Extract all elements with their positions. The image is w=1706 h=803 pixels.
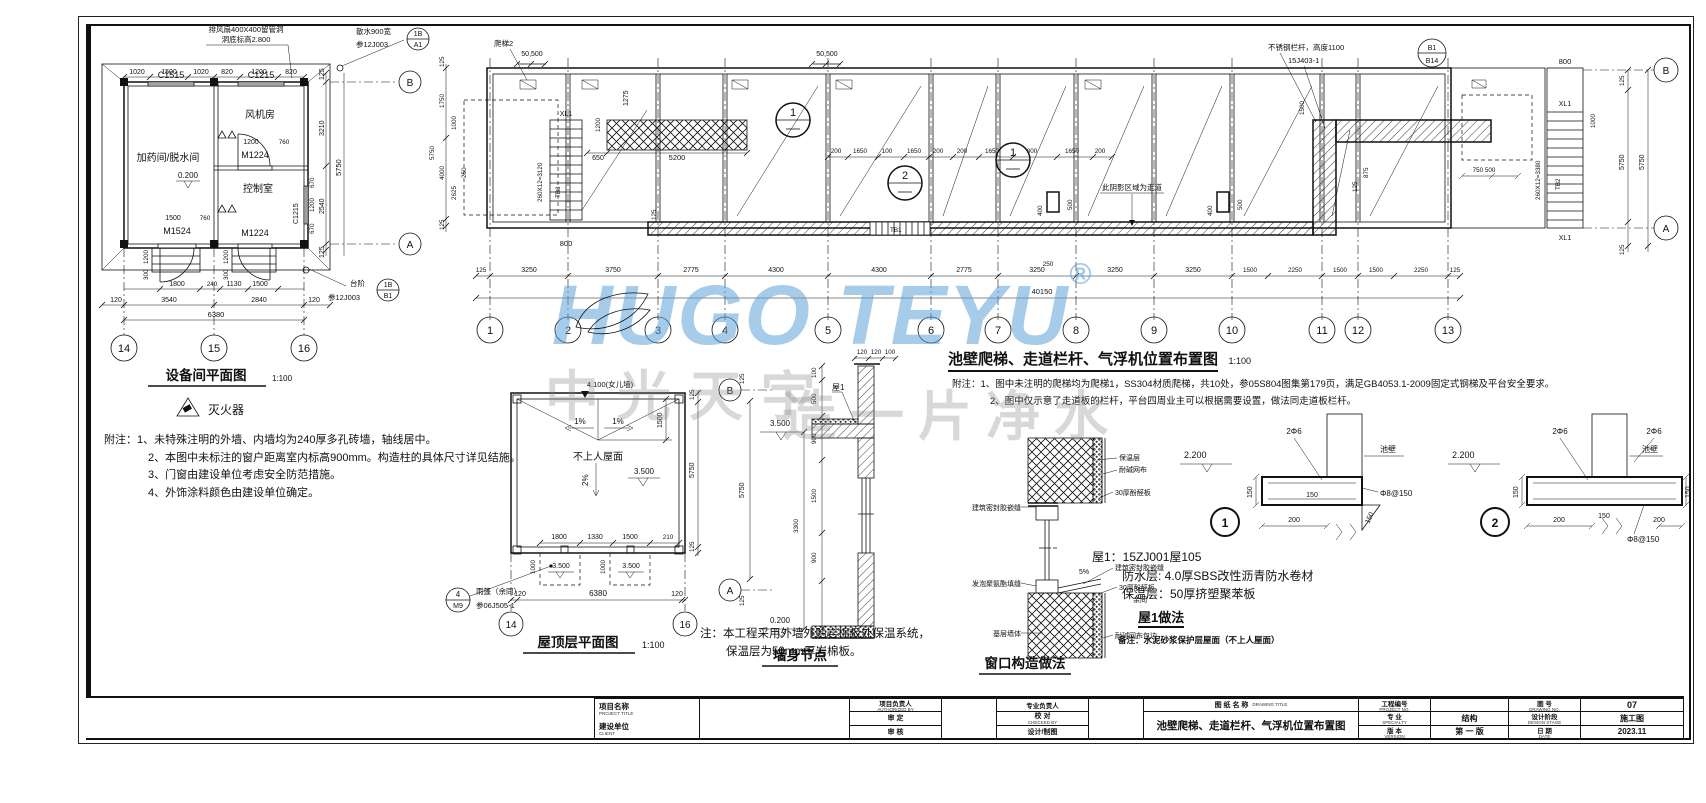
svg-text:820: 820	[221, 69, 233, 76]
svg-text:200: 200	[1553, 517, 1565, 524]
svg-text:2: 2	[565, 325, 571, 337]
svg-text:池壁: 池壁	[1380, 444, 1396, 454]
grid-bubble-A: A	[330, 233, 421, 255]
svg-text:4300: 4300	[871, 267, 887, 274]
discipline-lead-label: 专业负责人	[996, 698, 1088, 711]
roof-plan-title: 屋顶层平面图 1:100	[523, 635, 665, 653]
dims-bottom-main: 125 3250 3750 2775 4300 4300 2775 3250 3…	[473, 267, 1463, 301]
svg-text:4: 4	[456, 590, 461, 599]
svg-text:760: 760	[200, 215, 211, 222]
svg-text:5%: 5%	[1079, 569, 1089, 576]
wall-section: B A 125 5750 125 3.500 0.200 100 500 900…	[692, 328, 920, 673]
door-m1224-inner: M1224 1200 760	[238, 134, 290, 170]
svg-text:3250: 3250	[1185, 267, 1201, 274]
svg-text:1%: 1%	[612, 417, 624, 426]
authorized-value	[941, 698, 996, 738]
svg-text:210: 210	[663, 534, 674, 541]
svg-text:2Φ6: 2Φ6	[1552, 427, 1568, 436]
svg-text:120: 120	[857, 349, 868, 356]
svg-text:4.100(女儿墙): 4.100(女儿墙)	[587, 379, 634, 389]
svg-text:2540: 2540	[319, 198, 326, 214]
svg-text:B1: B1	[384, 293, 393, 300]
svg-text:A: A	[727, 586, 734, 597]
svg-text:5750: 5750	[739, 482, 746, 498]
dim-valley: 1500	[598, 396, 672, 443]
svg-text:1000: 1000	[600, 559, 607, 574]
elevation-0200: 0.200	[176, 171, 200, 188]
svg-text:2.200: 2.200	[1184, 450, 1207, 460]
sanshui-callout: 散水900宽 参12J003 1B A1	[337, 26, 429, 71]
svg-text:M9: M9	[453, 603, 463, 610]
svg-text:250: 250	[461, 167, 468, 178]
svg-text:此阴影区域为走道: 此阴影区域为走道	[1102, 182, 1162, 192]
svg-text:150: 150	[1513, 486, 1520, 498]
svg-text:6: 6	[928, 325, 934, 337]
spec-line: 保温层：50厚挤塑聚苯板	[1092, 585, 1313, 604]
svg-text:1500: 1500	[1243, 267, 1258, 274]
svg-text:15: 15	[208, 343, 220, 355]
svg-text:760: 760	[279, 139, 290, 146]
svg-text:XL1: XL1	[560, 111, 573, 118]
svg-text:125: 125	[739, 595, 746, 606]
svg-text:670: 670	[309, 223, 316, 234]
svg-text:XL1: XL1	[1559, 235, 1572, 242]
svg-text:125: 125	[319, 246, 326, 258]
svg-text:设备间平面图: 设备间平面图	[166, 367, 247, 383]
svg-text:900: 900	[811, 552, 818, 563]
svg-text:40150: 40150	[1032, 287, 1053, 296]
svg-text:0.200: 0.200	[770, 616, 791, 625]
spec-line: 防水层: 4.0厚SBS改性沥青防水卷材	[1092, 567, 1313, 586]
svg-text:750 500: 750 500	[1473, 167, 1496, 174]
svg-text:4300: 4300	[768, 267, 784, 274]
drawing-sheet: 排风扇400X400留管洞 洞底标高2.800 散水900宽 参12J003 1…	[0, 0, 1706, 803]
note-line: 保温层为50mm厚岩棉板。	[700, 643, 930, 661]
svg-text:1650: 1650	[985, 148, 1000, 155]
svg-text:2%: 2%	[581, 474, 590, 486]
svg-text:1500: 1500	[1299, 100, 1306, 115]
svg-text:7: 7	[995, 325, 1001, 337]
svg-text:400: 400	[1207, 205, 1214, 216]
svg-text:1000: 1000	[1590, 113, 1597, 128]
svg-text:A1: A1	[414, 42, 423, 49]
svg-text:300: 300	[1027, 148, 1038, 155]
svg-text:B14: B14	[1426, 58, 1439, 65]
dims-right: 125 3210 2540 125 5750 670 1200 670	[309, 68, 344, 258]
svg-text:125: 125	[439, 56, 446, 67]
extinguisher-legend: 灭火器	[177, 398, 244, 417]
svg-text:125: 125	[1619, 244, 1626, 255]
walkway-hatch: 1500 875 125 125	[648, 100, 1491, 235]
machine-1b: 1	[996, 143, 1030, 177]
svg-text:13: 13	[1442, 325, 1454, 337]
window-c1215-right: C1215	[293, 186, 308, 224]
svg-text:Φ8@150: Φ8@150	[1380, 489, 1413, 498]
room-control: 控制室	[243, 182, 273, 195]
svg-text:1130: 1130	[226, 281, 241, 288]
window-detail-title: 窗口构造做法	[979, 655, 1071, 674]
svg-text:1B: 1B	[384, 282, 393, 289]
svg-text:M1524: M1524	[163, 226, 191, 236]
parapet-elevation: 4.100(女儿墙)	[576, 379, 634, 398]
svg-text:150: 150	[1306, 492, 1318, 499]
svg-text:1800: 1800	[169, 281, 185, 288]
svg-text:16: 16	[679, 620, 691, 631]
svg-text:1: 1	[1222, 516, 1229, 530]
grid-bubbles-14-15-16: 14 15 16	[111, 248, 317, 361]
window-frame	[1028, 503, 1101, 593]
svg-text:3250: 3250	[1029, 267, 1045, 274]
svg-text:C1215: C1215	[293, 203, 300, 224]
svg-text:散水900宽: 散水900宽	[356, 26, 392, 36]
svg-text:雨篷（余同）: 雨篷（余同）	[476, 586, 521, 596]
svg-text:1: 1	[790, 107, 796, 119]
svg-text:15J403-1: 15J403-1	[1288, 56, 1319, 65]
dims-left: 125 1750 1000 4000 2625 250 5750 125	[429, 56, 468, 232]
svg-text:500: 500	[811, 393, 818, 404]
svg-text:3250: 3250	[1107, 267, 1123, 274]
slab-details: 2.200 2Φ6 池壁 Φ8@150 150 150 150 200 1 2.…	[1122, 402, 1688, 552]
svg-text:1800: 1800	[551, 534, 567, 541]
drawing-title-label-en: DRAWING TITLE	[1252, 703, 1287, 708]
svg-text:0.200: 0.200	[178, 171, 199, 180]
note-line: 注：本工程采用外墙外贴岩棉板外保温系统，	[700, 625, 930, 643]
roof1-remark: 备注：水泥砂浆保护层屋面（不上人屋面）	[1092, 634, 1313, 647]
roof1-spec: 屋1：15ZJ001屋105 防水层: 4.0厚SBS改性沥青防水卷材 保温层：…	[1092, 548, 1313, 647]
canopy-callout: 4 M9 雨篷（余同） 参06J505-1	[446, 564, 553, 612]
svg-text:B: B	[407, 78, 414, 89]
machine-1a: 1	[776, 103, 810, 137]
svg-text:3210: 3210	[319, 120, 326, 136]
svg-text:M1224: M1224	[241, 228, 269, 238]
svg-text:3.500: 3.500	[622, 563, 640, 570]
svg-text:基层墙体: 基层墙体	[993, 629, 1021, 638]
svg-text:120: 120	[308, 297, 320, 304]
date-label-en: DATE	[1539, 735, 1551, 738]
svg-text:125: 125	[651, 209, 658, 220]
walkway-label: 此阴影区域为走道	[1100, 182, 1164, 226]
svg-text:1200: 1200	[595, 117, 602, 132]
svg-text:Φ8@150: Φ8@150	[1627, 535, 1660, 544]
svg-text:爬梯2: 爬梯2	[494, 38, 513, 48]
version-value: 第 一 版	[1430, 725, 1508, 738]
svg-text:125: 125	[439, 219, 446, 230]
stage-value: 施工图	[1580, 711, 1683, 724]
svg-text:1200: 1200	[143, 249, 150, 264]
svg-text:1650: 1650	[853, 148, 868, 155]
roof1-title: 屋1做法	[1138, 610, 1184, 628]
right-extension: 750 500	[1451, 68, 1545, 228]
svg-text:2625: 2625	[451, 185, 458, 200]
svg-text:1%: 1%	[574, 417, 586, 426]
roof-label: 不上人屋面	[573, 451, 623, 463]
svg-text:排风扇400X400留管洞: 排风扇400X400留管洞	[208, 24, 283, 34]
svg-text:灭火器: 灭火器	[208, 403, 244, 417]
svg-text:1650: 1650	[907, 148, 922, 155]
svg-text:1:100: 1:100	[642, 640, 665, 650]
svg-text:3: 3	[655, 325, 661, 337]
room-dosing: 加药间/脱水间	[137, 151, 200, 164]
note-line: 附注：1、图中未注明的爬梯均为爬梯1，SS304材质爬梯，共10处，参05S80…	[952, 376, 1554, 393]
main-plan-title-text: 池壁爬梯、走道栏杆、气浮机位置布置图	[948, 351, 1218, 372]
svg-text:1500: 1500	[657, 412, 664, 428]
svg-text:50,500: 50,500	[521, 51, 543, 58]
main-plan-scale: 1:100	[1228, 356, 1251, 366]
grid-bubbles-ws: B A 125 5750 125	[719, 373, 772, 606]
room-fan: 风机房	[245, 108, 275, 121]
svg-text:1200: 1200	[309, 197, 316, 212]
wall-section-notes: 注：本工程采用外墙外贴岩棉板外保温系统， 保温层为50mm厚岩棉板。	[700, 625, 930, 662]
svg-text:3300: 3300	[793, 518, 800, 533]
grid-bubble-B: B	[330, 71, 421, 93]
equipment-room-plan: 排风扇400X400留管洞 洞底标高2.800 散水900宽 参12J003 1…	[88, 18, 433, 430]
svg-text:参06J505-1: 参06J505-1	[476, 600, 515, 610]
svg-text:125: 125	[1619, 75, 1626, 86]
elevation-3500-main: 3.500	[628, 467, 660, 486]
svg-text:2Φ6: 2Φ6	[1286, 427, 1302, 436]
svg-text:5750: 5750	[334, 159, 343, 176]
svg-text:200: 200	[1653, 517, 1665, 524]
svg-text:200: 200	[933, 148, 944, 155]
client-label: 建设单位	[599, 721, 629, 732]
railing-callout: 不锈钢栏杆，高度1100 15J403-1 B1 B14	[1268, 39, 1446, 128]
detail-2: 2.200 2Φ6 2Φ6 池壁 150 150 150 200 200 Φ8@…	[1448, 414, 1692, 544]
svg-text:不锈钢栏杆，高度1100: 不锈钢栏杆，高度1100	[1268, 42, 1344, 52]
date-value: 2023.11	[1580, 725, 1683, 738]
svg-text:1500: 1500	[1333, 267, 1348, 274]
stair-xl1-right: XL1 TB2 260X12=3380 XL1 800 1000	[1535, 57, 1597, 242]
svg-text:2Φ6: 2Φ6	[1646, 427, 1662, 436]
svg-text:260X12=3380: 260X12=3380	[1535, 160, 1542, 200]
svg-text:1: 1	[487, 325, 493, 337]
svg-text:14: 14	[118, 343, 130, 355]
grid-bubble-B-right: B	[1583, 58, 1678, 82]
dims-top-small: 50,500 50,500	[514, 51, 843, 67]
svg-text:8: 8	[1073, 325, 1079, 337]
svg-text:3.500: 3.500	[552, 563, 570, 570]
svg-text:120: 120	[671, 591, 683, 598]
svg-text:2: 2	[902, 170, 908, 182]
svg-text:400: 400	[1037, 205, 1044, 216]
svg-text:洞底标高2.800: 洞底标高2.800	[222, 34, 271, 44]
svg-text:120: 120	[871, 349, 882, 356]
svg-text:屋1: 屋1	[832, 383, 845, 392]
svg-text:2: 2	[1492, 516, 1499, 530]
svg-text:260X12=3120: 260X12=3120	[537, 162, 544, 202]
svg-text:200: 200	[831, 148, 842, 155]
svg-text:1020: 1020	[193, 69, 209, 76]
svg-text:1750: 1750	[439, 93, 446, 108]
svg-text:2775: 2775	[956, 267, 972, 274]
svg-text:3.500: 3.500	[634, 467, 655, 476]
svg-text:200: 200	[1288, 517, 1300, 524]
svg-text:300: 300	[223, 269, 230, 280]
discipline-lead-value	[1088, 698, 1143, 738]
svg-text:16: 16	[298, 343, 310, 355]
extinguisher-symbols	[218, 131, 236, 212]
svg-text:1200: 1200	[243, 139, 259, 146]
dims-inner-bottom: 1800 1330 1500 210	[537, 534, 682, 546]
svg-text:800: 800	[1559, 57, 1572, 66]
svg-text:500: 500	[1237, 199, 1244, 210]
project-title-value	[699, 698, 849, 738]
title-block: 项目名称 PROJECT TITLE 建设单位 CLIENT 项目负责人 AUT…	[86, 696, 1684, 738]
svg-text:1200: 1200	[223, 249, 230, 264]
svg-text:池壁: 池壁	[1642, 444, 1658, 454]
svg-text:500: 500	[1067, 199, 1074, 210]
svg-text:TB3: TB3	[555, 186, 562, 198]
svg-text:5200: 5200	[669, 153, 686, 162]
svg-text:125: 125	[1352, 181, 1359, 192]
dims-bottom-roof: 120 6380 120	[508, 589, 688, 603]
svg-text:1020: 1020	[129, 69, 145, 76]
svg-text:100: 100	[885, 349, 896, 356]
svg-text:TB2: TB2	[1555, 178, 1562, 190]
roof-plan: 4.100(女儿墙) 1% 1% 2% 1500 不上人屋面 3.500 3.5…	[428, 338, 720, 656]
svg-text:3750: 3750	[605, 267, 621, 274]
svg-text:100: 100	[882, 148, 893, 155]
stair-tb1: TB1	[870, 222, 930, 235]
svg-text:875: 875	[1363, 167, 1370, 178]
svg-text:125: 125	[1450, 267, 1461, 274]
entrance-steps: 1200 300 1200 300	[143, 248, 276, 280]
svg-text:14: 14	[505, 620, 517, 631]
client-label-en: CLIENT	[599, 732, 615, 737]
svg-text:TB1: TB1	[890, 227, 902, 234]
svg-text:B1: B1	[1428, 45, 1437, 52]
project-title-label-en: PROJECT TITLE	[599, 712, 633, 717]
svg-text:2250: 2250	[1288, 267, 1303, 274]
version-label-en: VERSION	[1384, 735, 1404, 738]
svg-text:12: 12	[1352, 325, 1364, 337]
main-tank-plan: 爬梯2 50,500 50,500 XL1 TB3 260X12=3120 80…	[432, 20, 1694, 350]
upper-wall	[1028, 438, 1105, 503]
svg-text:1B: 1B	[414, 31, 423, 38]
svg-text:4000: 4000	[439, 165, 446, 180]
svg-text:2.200: 2.200	[1452, 450, 1475, 460]
svg-text:XL1: XL1	[1559, 101, 1572, 108]
svg-text:2840: 2840	[251, 297, 267, 304]
svg-text:200: 200	[957, 148, 968, 155]
svg-text:3250: 3250	[521, 267, 537, 274]
svg-text:670: 670	[309, 177, 316, 188]
svg-text:1000: 1000	[451, 115, 458, 130]
svg-text:50,500: 50,500	[816, 51, 838, 58]
svg-text:发泡聚氨酯填缝: 发泡聚氨酯填缝	[972, 579, 1021, 588]
svg-text:3540: 3540	[161, 297, 177, 304]
svg-text:2775: 2775	[683, 267, 699, 274]
svg-text:M1224: M1224	[241, 150, 269, 160]
svg-text:1330: 1330	[587, 534, 603, 541]
svg-text:150: 150	[1247, 486, 1254, 498]
equipment-pads: 500 400 500 400	[1037, 192, 1244, 216]
svg-text:1500: 1500	[811, 488, 818, 503]
svg-text:台阶: 台阶	[350, 278, 365, 288]
svg-text:1500: 1500	[1369, 267, 1384, 274]
drawing-no-value: 07	[1580, 698, 1683, 711]
approved-label: 审 定	[849, 711, 941, 724]
machine-2: 2	[888, 166, 922, 200]
svg-text:11: 11	[1316, 325, 1327, 337]
design-draft-label: 设计/制图	[996, 725, 1088, 738]
svg-text:1500: 1500	[252, 281, 268, 288]
svg-text:120: 120	[110, 297, 122, 304]
svg-text:800: 800	[560, 239, 573, 248]
svg-text:屋顶层平面图: 屋顶层平面图	[538, 635, 619, 650]
svg-text:820: 820	[285, 69, 297, 76]
svg-text:窗口构造做法: 窗口构造做法	[985, 655, 1066, 671]
reviewed-label: 审 核	[849, 725, 941, 738]
svg-text:5750: 5750	[1619, 154, 1626, 170]
svg-text:1650: 1650	[1065, 148, 1080, 155]
svg-text:B: B	[1663, 66, 1670, 77]
svg-text:6380: 6380	[208, 310, 225, 319]
svg-text:5750: 5750	[1639, 154, 1646, 170]
svg-text:建筑密封胶嵌缝: 建筑密封胶嵌缝	[972, 503, 1021, 512]
svg-text:1500: 1500	[161, 69, 177, 76]
svg-text:1500: 1500	[165, 215, 181, 222]
main-plan-title: 池壁爬梯、走道栏杆、气浮机位置布置图 1:100	[948, 348, 1251, 369]
svg-text:150: 150	[1598, 513, 1610, 520]
svg-text:1200: 1200	[251, 69, 267, 76]
detail-1: 2.200 2Φ6 池壁 Φ8@150 150 150 150 200 1	[1180, 414, 1413, 540]
equipment-plan-title: 设备间平面图 1:100	[148, 367, 293, 386]
svg-text:2250: 2250	[1414, 267, 1429, 274]
svg-text:A: A	[407, 240, 414, 251]
specialty-value: 结构	[1430, 711, 1508, 724]
svg-text:B: B	[727, 386, 734, 397]
svg-text:100: 100	[811, 367, 818, 378]
svg-text:5750: 5750	[429, 145, 436, 160]
project-no-value	[1430, 698, 1508, 711]
svg-text:参12J003: 参12J003	[356, 39, 388, 49]
svg-text:125: 125	[739, 373, 746, 384]
svg-text:10: 10	[1226, 325, 1238, 337]
svg-text:650: 650	[592, 155, 604, 162]
top-dims-ws: 120 120 100	[852, 349, 898, 361]
svg-text:1275: 1275	[623, 90, 630, 106]
canopies: 3.500 3.500 1000 1000	[530, 553, 650, 585]
svg-text:3.500: 3.500	[770, 419, 791, 428]
drawing-title-label: 图 纸 名 称	[1215, 700, 1249, 710]
svg-text:240: 240	[207, 281, 218, 288]
svg-text:A: A	[1663, 224, 1670, 235]
dims-mid-row: 200 1650 100 1650 200 200 1650 300 1650 …	[825, 148, 1115, 160]
vertical-dims-ws: 100 500 900 1500 900 3300	[793, 363, 825, 632]
svg-text:300: 300	[143, 269, 150, 280]
svg-text:200: 200	[1095, 148, 1106, 155]
svg-text:1500: 1500	[622, 534, 638, 541]
svg-text:9: 9	[1151, 325, 1157, 337]
dims-right-main: 125 5750 5750 125	[1619, 67, 1651, 255]
svg-text:1:100: 1:100	[272, 374, 293, 383]
roof1-tag: 屋1	[832, 383, 855, 423]
svg-text:6380: 6380	[589, 589, 607, 598]
svg-text:参12J003: 参12J003	[328, 292, 360, 302]
drawing-title-value: 池壁爬梯、走道栏杆、气浮机位置布置图	[1143, 711, 1358, 738]
dims-bottom: 1800 240 1130 1500 120 3540 2840 120 638…	[99, 281, 333, 323]
svg-text:125: 125	[476, 267, 487, 274]
